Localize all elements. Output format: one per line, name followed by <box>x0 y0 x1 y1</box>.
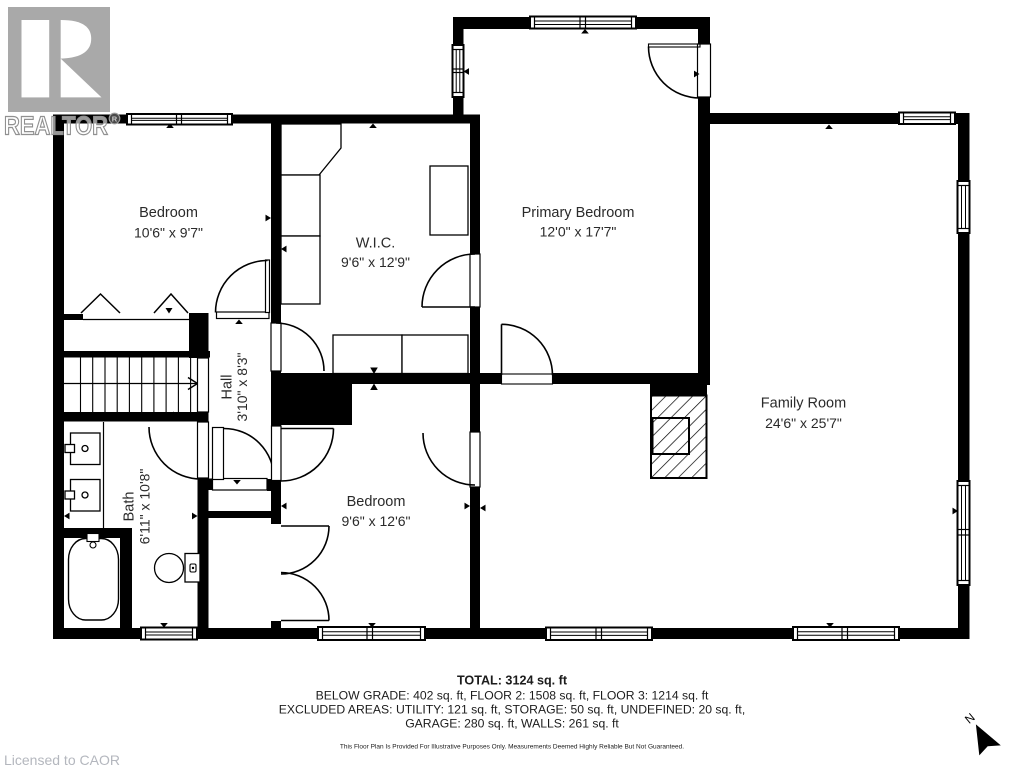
svg-text:3'10" x 8'3": 3'10" x 8'3" <box>234 352 250 421</box>
svg-text:Bedroom: Bedroom <box>347 494 406 510</box>
svg-text:REALTOR: REALTOR <box>4 113 108 141</box>
svg-text:GARAGE: 280 sq. ft, WALLS: 261: GARAGE: 280 sq. ft, WALLS: 261 sq. ft <box>405 717 619 731</box>
svg-text:BELOW GRADE: 402 sq. ft, FLOOR: BELOW GRADE: 402 sq. ft, FLOOR 2: 1508 s… <box>316 689 709 703</box>
svg-text:9'6" x 12'9": 9'6" x 12'9" <box>341 254 410 270</box>
svg-text:Primary Bedroom: Primary Bedroom <box>522 205 635 221</box>
svg-text:Bedroom: Bedroom <box>139 205 198 221</box>
svg-text:Bath: Bath <box>122 492 138 522</box>
svg-text:EXCLUDED AREAS: UTILITY: 121 s: EXCLUDED AREAS: UTILITY: 121 sq. ft, STO… <box>279 703 745 717</box>
svg-text:12'0" x 17'7": 12'0" x 17'7" <box>540 224 617 240</box>
svg-text:TOTAL: 3124 sq. ft: TOTAL: 3124 sq. ft <box>457 674 568 688</box>
svg-text:Family Room: Family Room <box>761 396 846 412</box>
svg-text:6'11" x 10'8": 6'11" x 10'8" <box>137 469 153 545</box>
svg-text:W.I.C.: W.I.C. <box>356 236 395 252</box>
svg-text:9'6" x 12'6": 9'6" x 12'6" <box>342 513 411 529</box>
svg-text:24'6" x 25'7": 24'6" x 25'7" <box>765 415 842 431</box>
svg-text:This Floor Plan Is Provided Fo: This Floor Plan Is Provided For Illustra… <box>340 744 684 751</box>
svg-text:Licensed to CAOR: Licensed to CAOR <box>4 752 120 768</box>
svg-text:R: R <box>112 115 118 124</box>
svg-text:10'6" x 9'7": 10'6" x 9'7" <box>134 225 203 241</box>
